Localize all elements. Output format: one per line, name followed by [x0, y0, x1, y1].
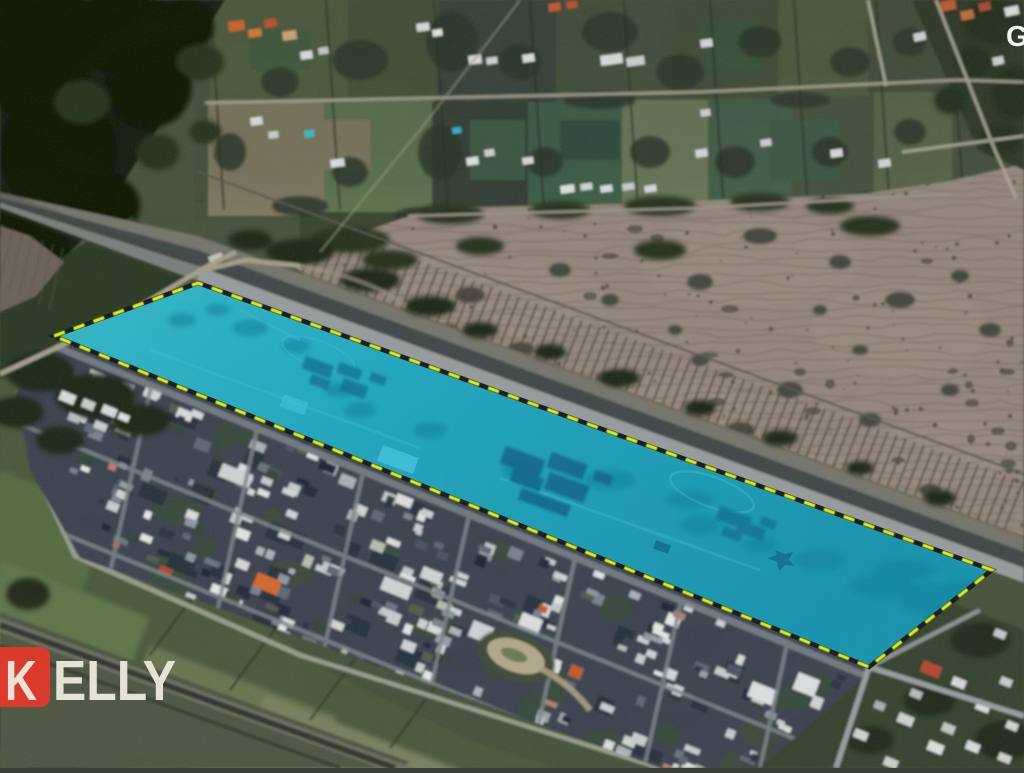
svg-text:G: G	[1006, 21, 1024, 53]
svg-text:K: K	[5, 649, 37, 713]
svg-text:ELLY: ELLY	[53, 649, 176, 713]
